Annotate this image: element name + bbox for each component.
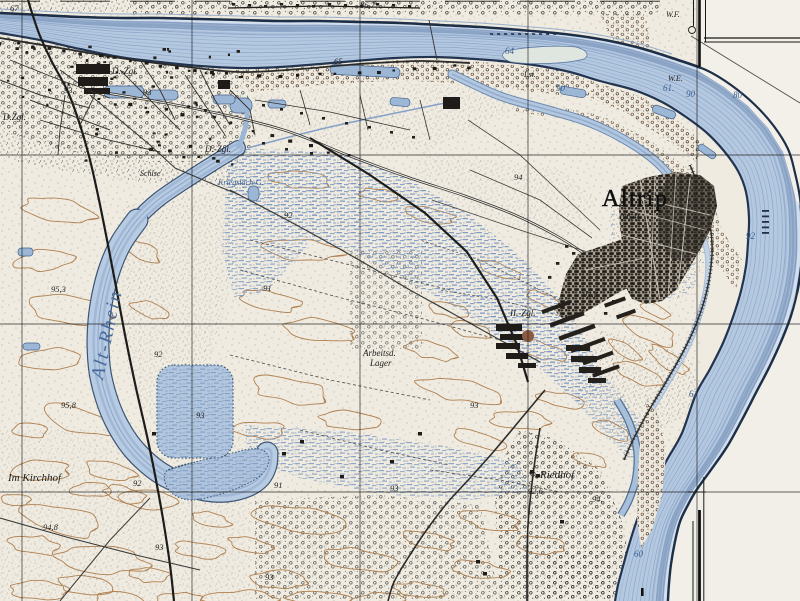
svg-text:Arbeitsd.: Arbeitsd. — [362, 348, 396, 358]
svg-text:93: 93 — [196, 410, 205, 420]
svg-text:61.: 61. — [663, 83, 674, 93]
svg-text:(96,4): (96,4) — [620, 212, 640, 221]
svg-text:90: 90 — [556, 83, 566, 93]
svg-text:W.F.: W.F. — [666, 10, 680, 19]
svg-text:W.E.: W.E. — [668, 74, 683, 83]
svg-text:90: 90 — [686, 89, 696, 99]
svg-text:93: 93 — [143, 87, 152, 97]
svg-text:92: 92 — [133, 478, 142, 488]
svg-text:91: 91 — [274, 480, 283, 490]
svg-text:67: 67 — [10, 3, 19, 13]
svg-text:Kriegslach-G.: Kriegslach-G. — [217, 178, 264, 187]
svg-text:93,8: 93,8 — [583, 289, 599, 299]
svg-text:Im Kirchhof: Im Kirchhof — [7, 472, 63, 484]
svg-text:94,8: 94,8 — [43, 522, 59, 532]
svg-text:D.Zgl.: D.Zgl. — [2, 112, 26, 122]
svg-text:61: 61 — [689, 389, 698, 399]
svg-text:D.-Zgl.: D.-Zgl. — [204, 144, 231, 154]
svg-text:Lager: Lager — [369, 358, 392, 368]
svg-text:64: 64 — [505, 46, 515, 56]
svg-text:86,7: 86,7 — [360, 0, 376, 10]
svg-text:94: 94 — [514, 172, 523, 182]
svg-text:80: 80 — [733, 90, 743, 100]
svg-text:94,: 94, — [592, 494, 603, 504]
svg-text:92: 92 — [284, 210, 293, 220]
svg-text:92,6: 92,6 — [528, 486, 544, 496]
svg-text:92: 92 — [154, 349, 163, 359]
svg-text:Altrip: Altrip — [602, 186, 668, 212]
svg-text:65: 65 — [334, 56, 343, 66]
svg-text:93: 93 — [390, 483, 399, 493]
svg-text:II.-Zgl.: II.-Zgl. — [509, 308, 536, 318]
svg-text:95,3: 95,3 — [51, 284, 66, 294]
svg-text:Riedhof: Riedhof — [539, 469, 576, 481]
svg-text:93: 93 — [155, 542, 164, 552]
svg-text:92: 92 — [746, 231, 756, 241]
svg-text:Lst.: Lst. — [523, 70, 536, 79]
svg-text:95,8: 95,8 — [61, 400, 77, 410]
svg-text:Schlse: Schlse — [140, 169, 161, 178]
svg-text:93: 93 — [265, 572, 274, 582]
svg-text:·91: ·91 — [261, 283, 272, 293]
svg-text:60: 60 — [634, 549, 644, 559]
svg-text:D.-Zgl.: D.-Zgl. — [111, 66, 138, 76]
svg-text:93,: 93, — [64, 85, 75, 95]
svg-text:93: 93 — [470, 400, 479, 410]
